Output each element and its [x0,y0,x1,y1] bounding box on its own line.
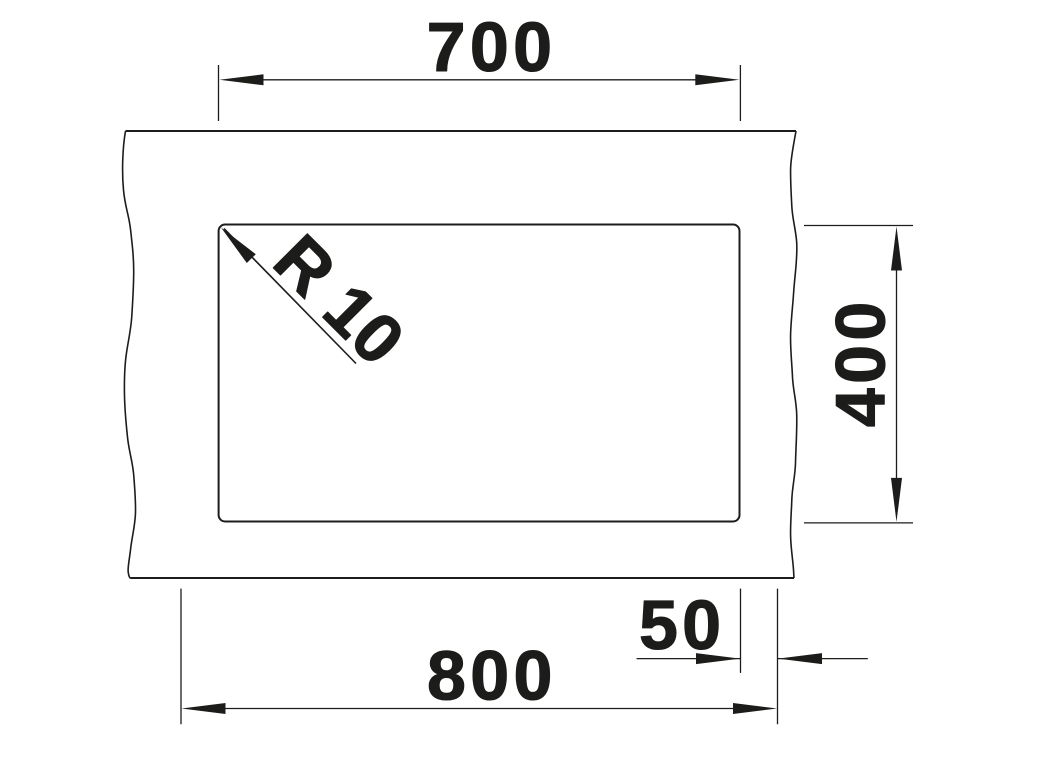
svg-text:700: 700 [427,8,557,86]
svg-text:800: 800 [427,637,557,715]
svg-text:50: 50 [639,586,725,664]
svg-text:400: 400 [822,297,900,427]
